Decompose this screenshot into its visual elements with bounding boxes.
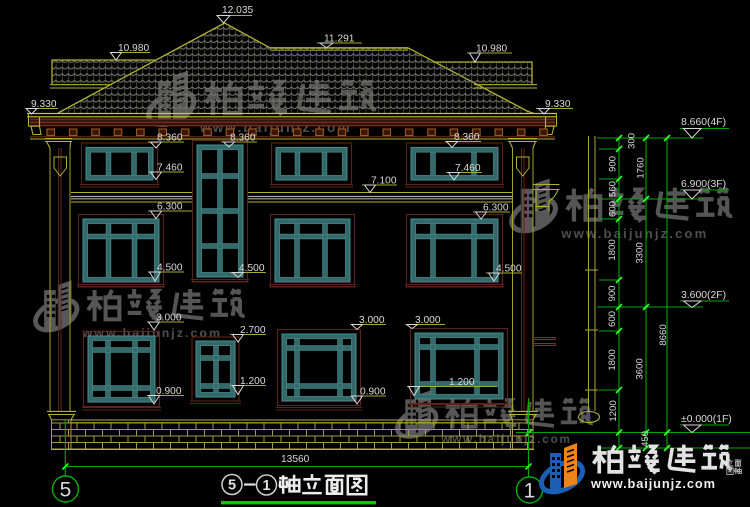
svg-text:600: 600 bbox=[607, 311, 618, 327]
svg-text:www.baijunjz.com: www.baijunjz.com bbox=[590, 476, 716, 491]
svg-text:1800: 1800 bbox=[607, 349, 618, 370]
svg-text:1: 1 bbox=[262, 478, 270, 494]
svg-text:560: 560 bbox=[608, 181, 619, 197]
svg-text:3.600(2F): 3.600(2F) bbox=[681, 290, 726, 301]
svg-text:13560: 13560 bbox=[281, 454, 310, 465]
svg-text:1200: 1200 bbox=[608, 400, 619, 421]
svg-text:900: 900 bbox=[608, 156, 619, 172]
svg-text:3300: 3300 bbox=[635, 242, 646, 263]
svg-text:5: 5 bbox=[60, 479, 72, 502]
svg-text:8.660(4F): 8.660(4F) bbox=[681, 117, 726, 128]
svg-text:1800: 1800 bbox=[607, 239, 618, 260]
svg-text:3600: 3600 bbox=[635, 358, 646, 379]
svg-text:900: 900 bbox=[607, 285, 618, 301]
svg-text:6.900(3F): 6.900(3F) bbox=[681, 179, 726, 190]
svg-text:8660: 8660 bbox=[658, 324, 669, 345]
svg-text:600: 600 bbox=[608, 201, 619, 217]
svg-text:300: 300 bbox=[627, 133, 638, 149]
svg-text:12.035: 12.035 bbox=[222, 5, 253, 16]
svg-text:1: 1 bbox=[524, 480, 536, 503]
svg-text:±0.000(1F): ±0.000(1F) bbox=[681, 414, 732, 425]
svg-text:5: 5 bbox=[228, 478, 236, 494]
svg-text:1760: 1760 bbox=[636, 157, 647, 178]
